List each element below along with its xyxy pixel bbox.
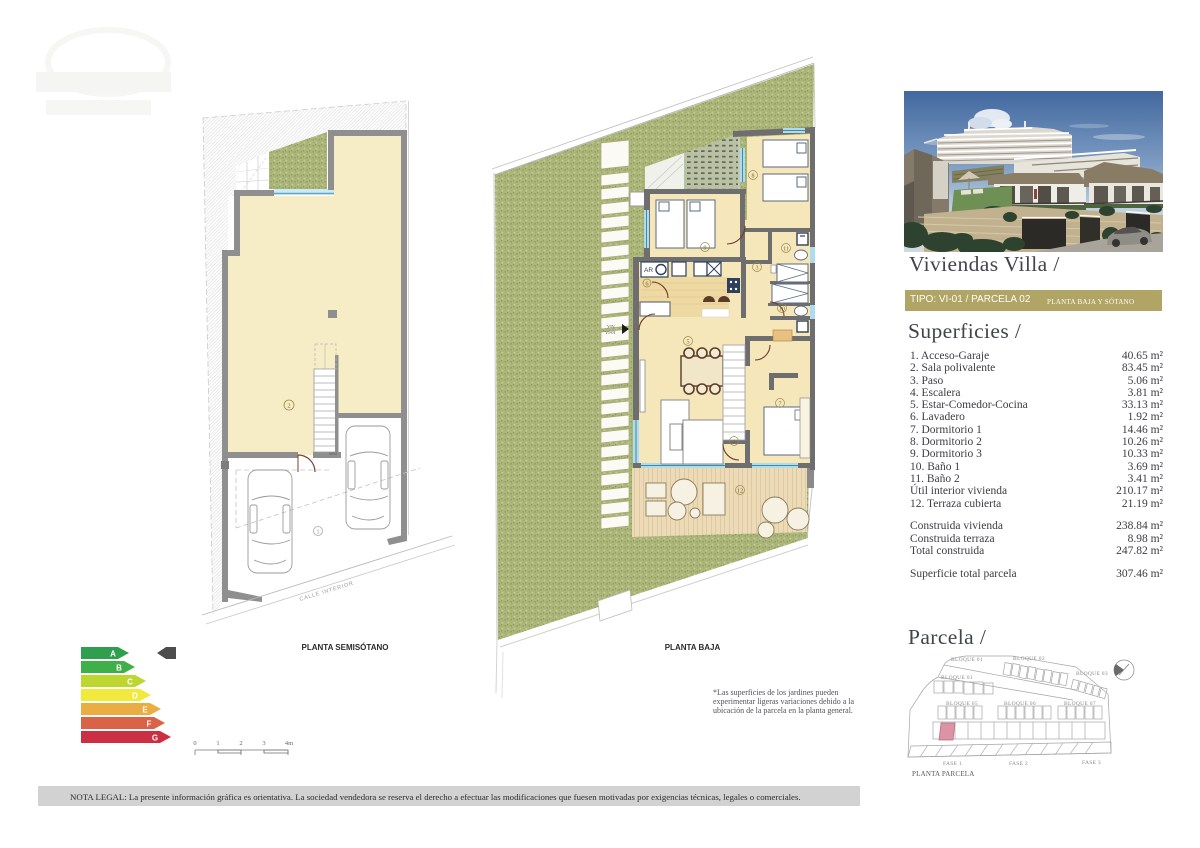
svg-text:G: G (152, 734, 158, 743)
svg-text:BLOQUE 01: BLOQUE 01 (941, 675, 973, 681)
svg-text:7: 7 (779, 402, 782, 408)
svg-text:F: F (147, 720, 152, 729)
svg-text:2: 2 (239, 740, 242, 747)
svg-text:5: 5 (687, 340, 690, 346)
svg-text:6: 6 (646, 282, 649, 288)
svg-text:BLOQUE 02: BLOQUE 02 (1013, 656, 1045, 662)
svg-text:FASE 3: FASE 3 (1082, 760, 1101, 766)
svg-text:VI-01: VI-01 (605, 330, 616, 335)
svg-text:1: 1 (317, 530, 320, 536)
svg-text:C: C (127, 678, 133, 687)
svg-text:4m: 4m (285, 740, 293, 747)
svg-text:AR: AR (644, 267, 653, 274)
svg-text:11: 11 (783, 247, 789, 253)
svg-text:FASE 2: FASE 2 (1009, 761, 1028, 767)
svg-text:8: 8 (752, 174, 755, 180)
svg-text:VIV: VIV (607, 324, 616, 329)
svg-text:FASE 1: FASE 1 (943, 761, 962, 767)
svg-text:BLOQUE 06: BLOQUE 06 (1004, 701, 1036, 707)
svg-text:9: 9 (704, 246, 707, 252)
svg-text:BLOQUE 07: BLOQUE 07 (1064, 701, 1096, 707)
svg-text:2: 2 (287, 403, 290, 410)
svg-text:12: 12 (737, 489, 743, 495)
svg-text:10: 10 (779, 307, 785, 313)
svg-text:4: 4 (733, 440, 736, 446)
svg-text:0: 0 (193, 740, 196, 747)
svg-text:E: E (142, 706, 148, 715)
svg-text:BLOQUE 03: BLOQUE 03 (1076, 671, 1108, 677)
svg-text:BLOQUE 05: BLOQUE 05 (946, 701, 978, 707)
svg-text:B: B (116, 664, 122, 673)
svg-text:3: 3 (262, 740, 265, 747)
svg-text:D: D (132, 692, 138, 701)
svg-text:BLOQUE 01: BLOQUE 01 (951, 657, 983, 663)
svg-text:1: 1 (216, 740, 219, 747)
svg-text:A: A (110, 650, 116, 659)
svg-text:3: 3 (756, 266, 759, 272)
